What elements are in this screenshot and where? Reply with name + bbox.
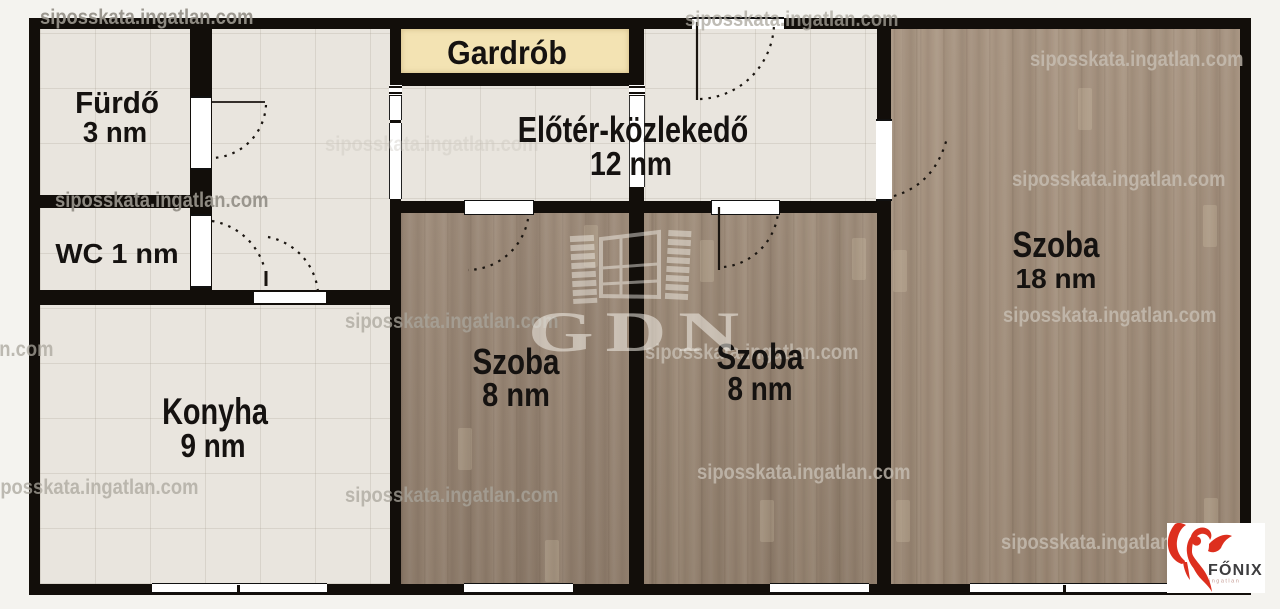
svg-text:ingatlan: ingatlan — [1209, 579, 1240, 585]
svg-text:FŐNIX: FŐNIX — [1208, 560, 1263, 579]
